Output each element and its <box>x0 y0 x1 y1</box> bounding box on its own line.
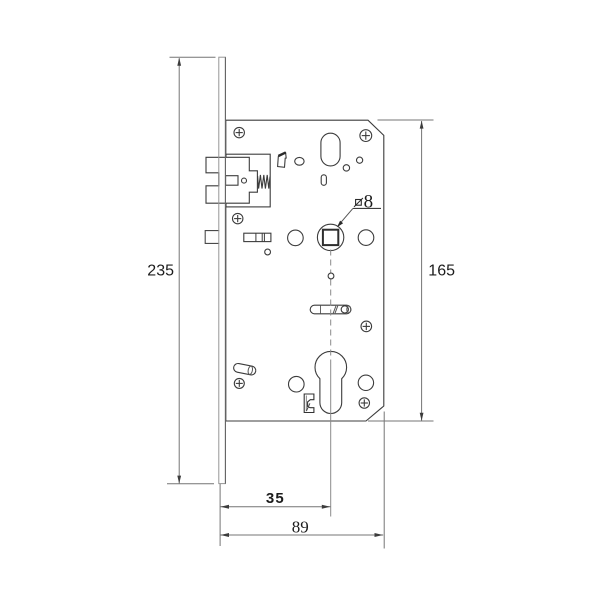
svg-text:89: 89 <box>292 517 309 536</box>
svg-text:235: 235 <box>147 262 174 279</box>
svg-text:165: 165 <box>428 262 455 279</box>
svg-text:8: 8 <box>364 192 374 213</box>
svg-text:35: 35 <box>266 490 285 507</box>
